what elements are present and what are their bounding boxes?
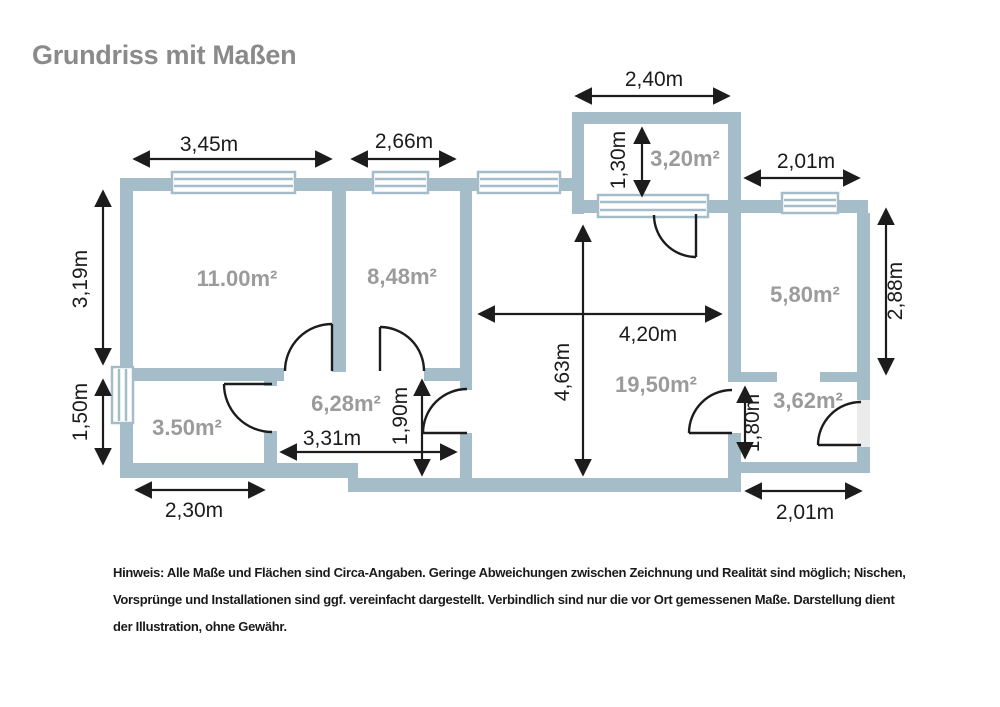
wall-vestibule-left [728,433,741,490]
wall-exterior-bottom-center [348,478,741,492]
wall-vestibule-top-left [728,372,777,382]
room-area-label: 11.00m² [197,266,278,291]
note-line-1: Hinweis: Alle Maße und Flächen sind Circ… [113,565,906,580]
dimension-label: 1,90m [389,387,412,445]
room-area-label: 8,48m² [367,264,437,289]
dimension-label: 3,19m [69,250,92,308]
wall-hallway-top-left [128,368,284,381]
wall-exterior-right-lower [857,447,870,463]
dimension-width-hallway: 3,31m [282,427,455,452]
dimension-height-living-room: 4,63m [551,227,583,474]
room-area-label: 3,62m² [773,388,843,413]
wall-balcony-top [572,112,741,124]
room-area-label: 3,20m² [650,146,720,171]
page-title: Grundriss mit Maßen [32,40,296,70]
wall-exterior-left [120,178,133,472]
room-area-label: 3.50m² [152,415,222,440]
floorplan-page: Grundriss mit Maßen [0,0,1000,707]
window-living-room-top [478,172,560,193]
wall-central-upper [460,191,472,390]
wall-divider-right-rooms [728,214,741,372]
window-room-top-right [782,193,838,213]
door-room-top-left [285,324,332,371]
dimension-label: 3,31m [303,427,361,450]
dimension-label: 1,30m [607,131,630,189]
wall-exterior-bottom-left [120,463,358,478]
dimension-label: 4,63m [551,343,574,401]
door-balcony [654,214,696,257]
note-line-2: Vorsprünge und Installationen sind ggf. … [113,592,895,607]
dimension-label: 2,01m [777,150,835,173]
dimension-height-room-top-right: 2,88m [884,210,907,373]
dimension-label: 1,50m [69,383,92,441]
wall-vestibule-top-right [820,372,857,382]
dimension-label: 2,88m [884,262,907,320]
wall-divider-rooms-top [332,191,346,372]
window-room-top-left [172,172,295,193]
dimension-label: 2,30m [165,499,223,522]
wall-vestibule-bottom [741,462,870,473]
window-balcony [598,195,708,217]
dimension-width-bottom-right: 2,01m [747,491,860,524]
dimension-width-room-top-middle: 2,66m [353,130,454,159]
dimension-width-room-top-right: 2,01m [746,150,858,178]
dimension-opening-vestibule: 1,80m [741,388,764,457]
dimension-label: 4,20m [619,323,677,346]
window-room-top-middle [373,172,428,193]
dimension-height-room-bottom-left: 1,50m [69,381,103,463]
note-line-3: der Illustration, ohne Gewähr. [113,619,287,634]
room-area-label: 5,80m² [770,282,840,307]
door-hallway-living-room [423,389,467,433]
door-room-top-middle [380,327,424,371]
floorplan-drawing: Grundriss mit Maßen [0,0,1000,707]
dimension-label: 2,01m [776,501,834,524]
door-room-bottom-left [224,384,272,432]
wall-balcony-right [728,112,741,214]
dimension-label: 3,45m [180,133,238,156]
room-area-label: 19,50m² [615,372,697,397]
dimension-width-room-top-left: 3,45m [135,133,330,159]
wall-central-lower [460,433,472,479]
wall-hallway-top-right [424,368,472,381]
wall-exterior-right-upper [857,213,870,400]
dimension-width-living-room: 4,20m [480,314,720,346]
dimension-width-bottom-left: 2,30m [137,490,263,522]
wall-balcony-left [572,112,584,214]
entrance-door-opening [857,400,870,447]
window-room-bottom-left [112,367,133,423]
dimension-height-room-top-left: 3,19m [69,192,103,363]
disclaimer-note: Hinweis: Alle Maße und Flächen sind Circ… [113,565,906,634]
dimension-width-balcony: 2,40m [577,68,728,96]
dimension-label: 1,80m [741,394,764,452]
dimension-label: 2,40m [625,68,683,91]
dimension-depth-hallway: 1,90m [389,381,422,474]
dimension-depth-balcony: 1,30m [607,129,642,195]
room-area-label: 6,28m² [311,391,381,416]
dimension-label: 2,66m [375,130,433,153]
